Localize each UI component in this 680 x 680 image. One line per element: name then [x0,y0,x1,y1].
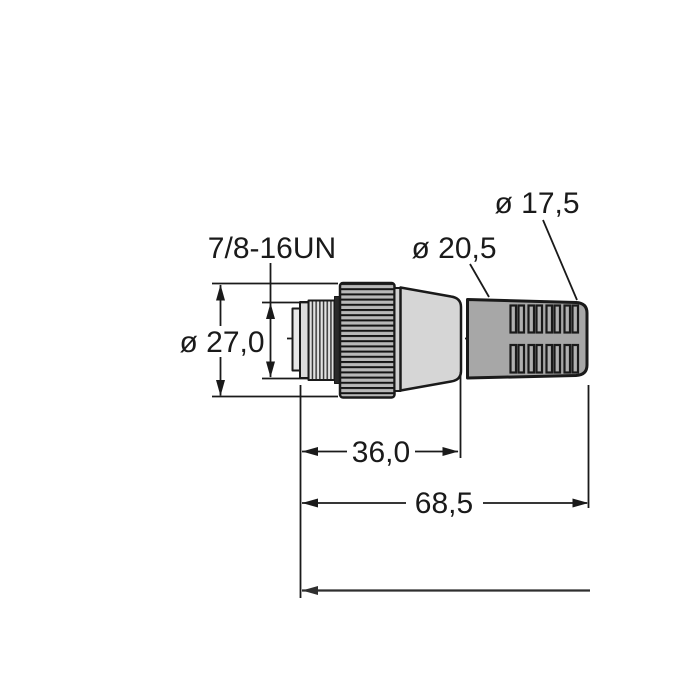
coupling-nut-knurl [340,283,395,398]
connector-dimension-drawing: ø 27,0 7/8-16UN ø 20,5 ø 17,5 36,0 68,5 [0,0,680,680]
boot-grip-slot [511,306,517,333]
boot-grip-slot [573,345,579,373]
boot-grip-slot [555,345,561,373]
boot-rear-diameter-label: ø 17,5 [494,187,579,220]
dimension-drawing-page: ø 27,0 7/8-16UN ø 20,5 ø 17,5 36,0 68,5 [0,0,680,680]
front-collar [300,302,309,378]
molded-body-taper [401,288,462,391]
nut-diameter-label: ø 27,0 [179,326,264,359]
boot-grip-slot [519,306,525,333]
boot-grip-slot [537,345,543,373]
boot-grip-slot [565,306,571,333]
boot-grip-slot [519,345,525,373]
boot-grip-slot [529,306,535,333]
boot-grip-slot [529,345,535,373]
boot-grip-slot [547,306,553,333]
boot-grip-slot [565,345,571,373]
thread-section [309,301,335,381]
boot-grip-slot [555,306,561,333]
overall-length-label: 68,5 [415,487,473,520]
boot-grip-slot [537,306,543,333]
body-length-label: 36,0 [352,436,410,469]
boot-grip-slot [547,345,553,373]
boot-front-diameter-label: ø 20,5 [411,232,496,265]
boot-grip-slot [511,345,517,373]
thread-spec-label: 7/8-16UN [208,232,336,265]
boot-grip-slot [573,306,579,333]
front-tip-step [293,309,301,371]
